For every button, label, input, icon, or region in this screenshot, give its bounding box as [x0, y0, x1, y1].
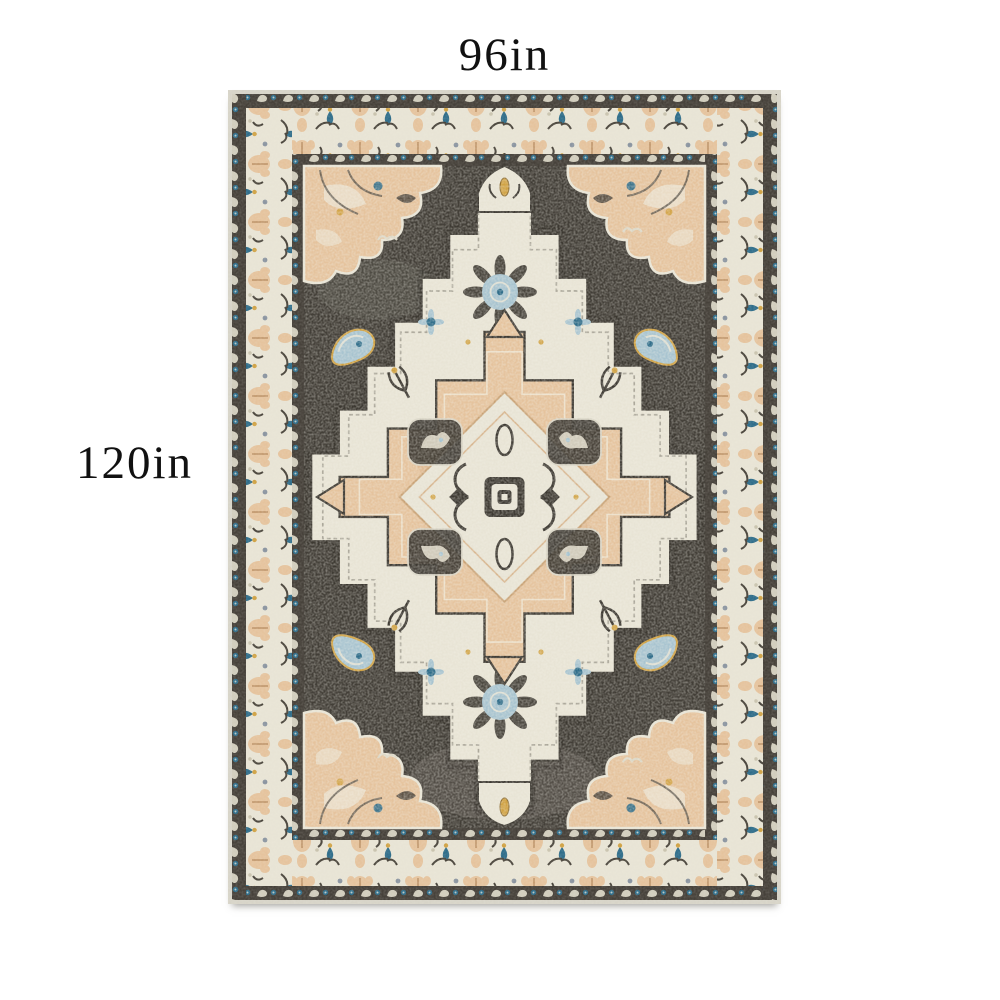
rug-photo — [228, 90, 781, 904]
rug-illustration — [228, 90, 781, 904]
product-dimension-image: 96in 120in — [0, 0, 1000, 1000]
width-dimension-label: 96in — [228, 28, 781, 82]
height-dimension-label: 120in — [42, 436, 227, 490]
